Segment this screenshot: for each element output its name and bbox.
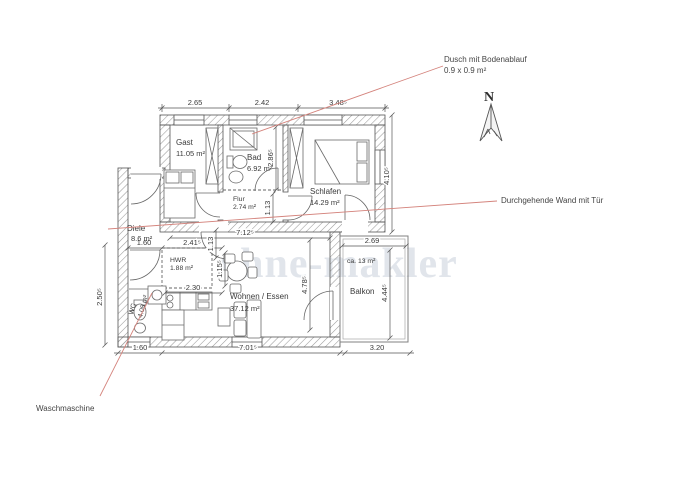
dim-kitchen-height: 1.15⁵ [215,260,224,278]
dim-flur-height: 1.13 [263,201,272,216]
dim-balcony-height: 4.44⁵ [380,284,389,302]
dim-kitchen-width: 2.30 [186,283,201,292]
bed-icon [164,170,195,218]
door-gast [196,193,220,217]
floor-plan-svg: ohne-makler [0,0,680,480]
north-arrow-icon: N [480,90,502,141]
door-schlafen-balkon [345,195,370,220]
toilet-icon [227,156,247,169]
door-balkon [304,291,333,320]
room-label-schlafen: Schlafen [310,187,341,196]
annotation-shower-line1: Dusch mit Bodenablauf [444,55,527,64]
north-label: N [484,90,494,105]
room-area-wohnen: 37.12 m² [230,304,260,313]
room-area-balkon: ca. 13 m² [347,258,376,265]
door-schlafen [288,196,312,220]
room-label-diele: Diele [127,224,146,233]
room-label-balkon: Balkon [350,287,374,296]
wardrobe-icon [290,128,303,188]
room-area-schlafen: 14.29 m² [310,198,340,207]
annotation-shower-line2: 0.9 x 0.9 m² [444,66,487,75]
window-icon [174,115,204,125]
kitchen-counter-icon [162,292,212,340]
room-label-wohnen: Wohnen / Essen [230,292,289,301]
room-label-flur: Flur [233,196,245,203]
dim-balcony-width: 2.69 [365,236,380,245]
dim-living-height: 4.78⁵ [300,276,309,294]
room-area-diele: 8.6 m² [131,234,153,243]
room-label-hwr: HWR [170,257,186,264]
dim-top-1: 2.65 [188,98,203,107]
room-area-wc: 4.08 m² [137,294,150,319]
door-diele-wohnen [130,250,160,280]
room-label-gast: Gast [176,138,194,147]
bed-icon [315,140,369,184]
dim-top-2: 2.42 [255,98,270,107]
dim-bottom-2: 7.01⁵ [239,343,257,352]
room-area-gast: 11.05 m² [176,149,206,158]
room-area-bad: 6.92 m² [247,164,273,173]
room-area-hwr: 1.88 m² [170,265,194,272]
room-label-bad: Bad [247,153,261,162]
dim-bottom-3: 3.20 [370,343,385,352]
window-icon [229,115,257,125]
dim-hwr-height: 1.13 [206,237,215,252]
sink-icon [229,171,243,183]
floor-plan-page: ohne-makler [0,0,680,480]
dim-inner-width: 7.12⁵ [236,228,254,237]
wardrobe-icon [206,128,218,184]
annotation-continuous-wall: Durchgehende Wand mit Tür [501,196,604,205]
shower-icon [230,128,257,150]
annotation-washing-machine: Waschmaschine [36,404,95,413]
window-icon [304,115,342,125]
room-area-flur: 2.74 m² [233,204,257,211]
dim-hwr-width: 2.41⁵ [183,238,201,247]
dim-left: 2.50⁵ [95,288,104,306]
dim-right: 4.10⁵ [382,167,391,185]
dim-bottom-1: 1.60 [133,343,148,352]
